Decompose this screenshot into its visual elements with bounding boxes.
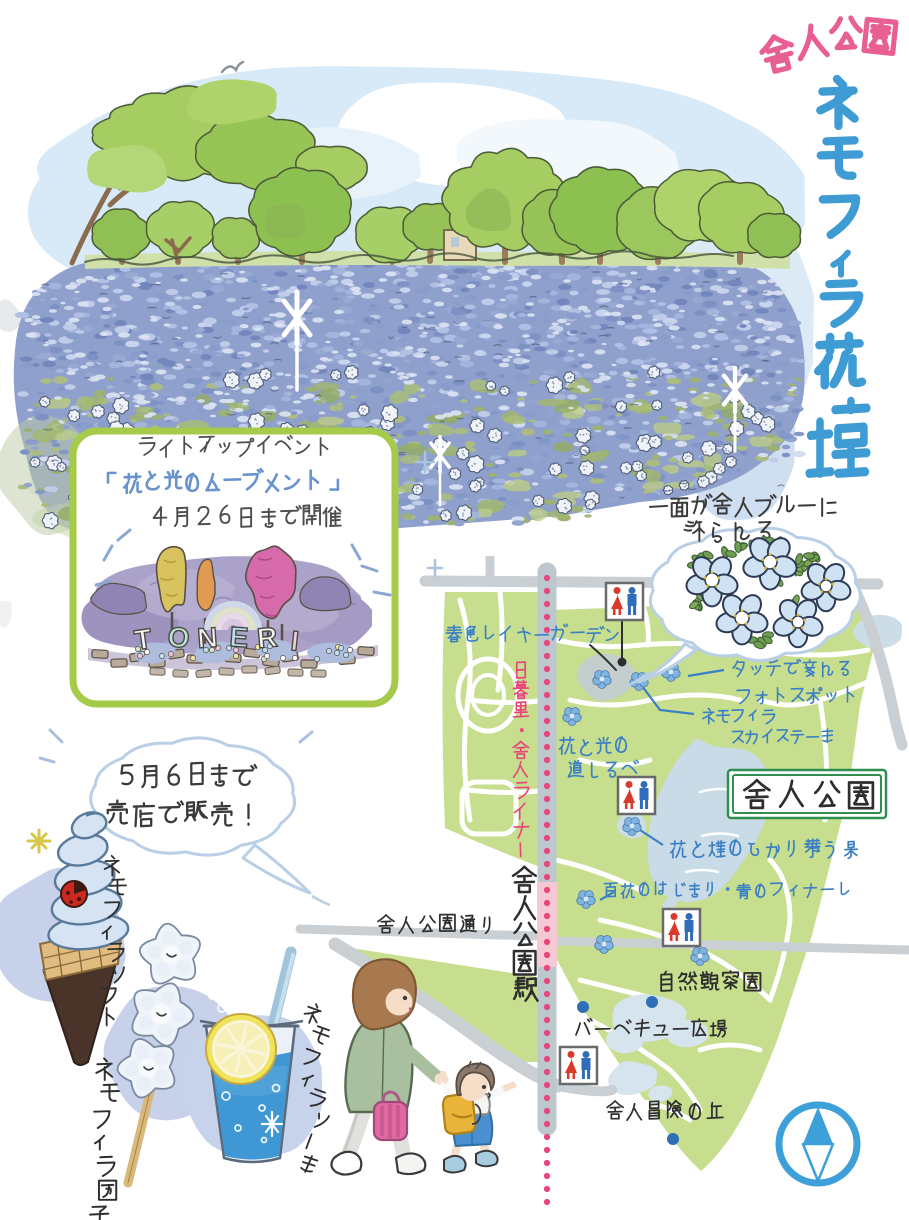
svg-text:R: R bbox=[256, 621, 279, 654]
svg-text:E: E bbox=[229, 621, 250, 653]
svg-text:O: O bbox=[166, 621, 190, 654]
svg-text:N: N bbox=[196, 622, 218, 654]
